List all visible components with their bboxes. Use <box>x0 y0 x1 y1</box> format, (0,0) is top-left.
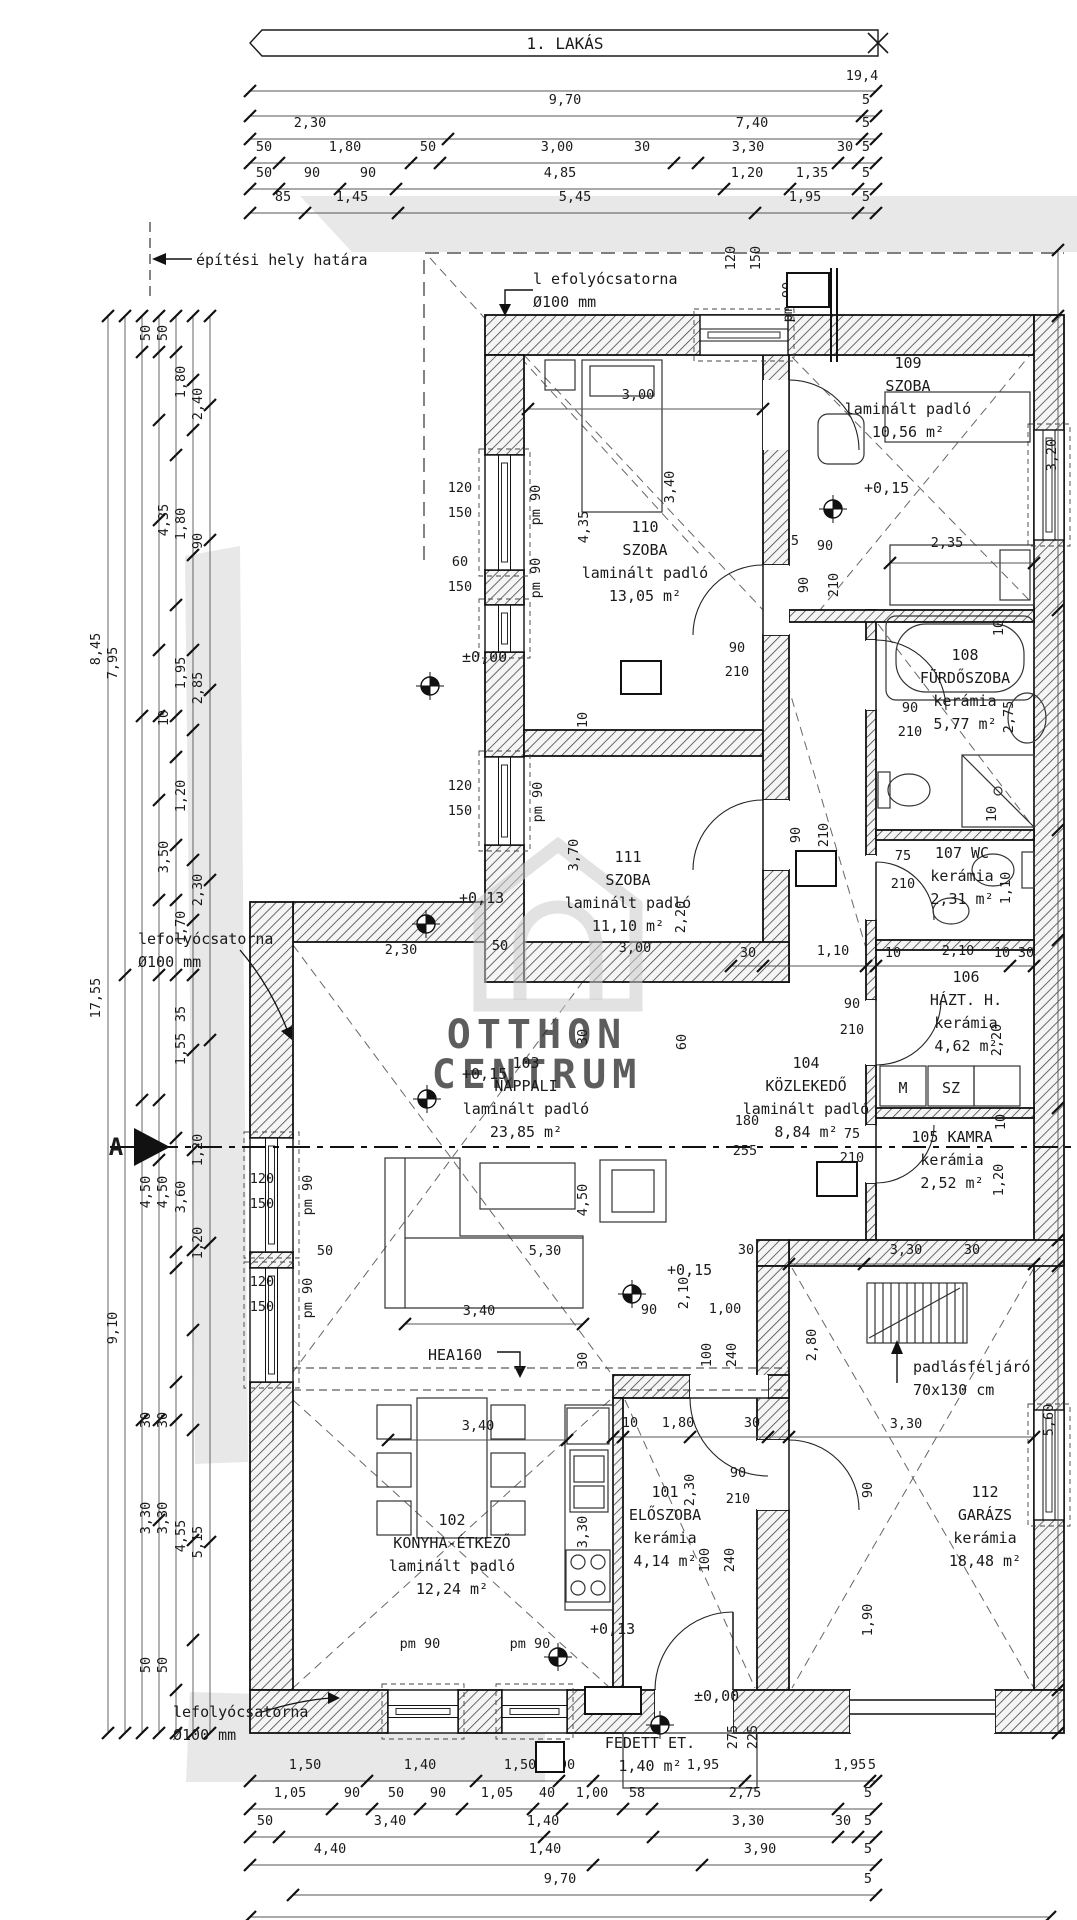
dimension-label: 2,30 <box>294 115 327 131</box>
dimension-label: 1,20 <box>190 1134 206 1167</box>
room-label: kerámia <box>934 1014 997 1032</box>
dimension-label: 50 <box>420 139 436 155</box>
room-label: 107 WC <box>935 844 989 862</box>
dimension-label: 90 <box>788 827 804 843</box>
door-opening <box>866 855 876 920</box>
room-label: 103 <box>512 1054 539 1072</box>
furniture <box>491 1405 525 1439</box>
dimension-label: 10 <box>156 710 172 726</box>
room-label: 110 <box>631 518 658 536</box>
level-marker-icon <box>416 672 444 700</box>
wall <box>293 902 485 942</box>
dimension-label: 10 <box>622 1415 638 1431</box>
dimension-label: 225 <box>745 1725 761 1749</box>
dimension-label: 10 <box>984 806 1000 822</box>
sofa <box>385 1158 583 1308</box>
room-label: 4,62 m² <box>934 1037 997 1055</box>
dimension-label: 30 <box>835 1813 851 1829</box>
dimension-label: 3,30 <box>575 1516 591 1549</box>
dimension-label: 3,30 <box>138 1502 154 1535</box>
dimension-label: 90 <box>860 1482 876 1498</box>
wall <box>250 1252 293 1268</box>
dimension-label: 1,80 <box>329 139 362 155</box>
dimension-label: 50 <box>138 325 154 341</box>
dimension-label: 30 <box>634 139 650 155</box>
furniture <box>377 1501 411 1535</box>
dimension-label: 1,40 <box>529 1841 562 1857</box>
door-swing-arc <box>789 1440 859 1510</box>
dimension-label: 17,55 <box>88 978 104 1019</box>
door-swing-arc <box>876 1000 941 1065</box>
dimension-label: 1,00 <box>576 1785 609 1801</box>
dimension-label: 4,35 <box>576 511 592 544</box>
appliance-label: SZ <box>942 1079 960 1097</box>
door-opening <box>763 380 789 450</box>
dimension-label: 5 <box>864 1785 872 1801</box>
wall <box>768 1375 789 1398</box>
dimension-label: 10 <box>994 945 1010 961</box>
dimension-label: pm 90 <box>528 485 544 526</box>
wall <box>789 1240 1064 1266</box>
level-value: +0,15 <box>864 479 909 497</box>
dimension-label: 8,45 <box>88 633 104 666</box>
dimension-label: 4,50 <box>575 1184 591 1217</box>
dimension-label: 3,00 <box>541 139 574 155</box>
limit-arrowhead <box>152 253 166 265</box>
dimension-label: 1,10 <box>817 943 850 959</box>
dimension-label: 10 <box>885 945 901 961</box>
dimension-label: 75 <box>895 848 911 864</box>
dimension-label: pm 90 <box>300 1278 316 1319</box>
level-marker-icon <box>819 495 847 523</box>
dimension-label: 2,75 <box>1001 701 1017 734</box>
dimension-label: 30 <box>575 1352 591 1368</box>
door-opening <box>850 1690 995 1733</box>
room-label: 109 <box>894 354 921 372</box>
furniture <box>574 1456 604 1482</box>
dimension-label: 210 <box>840 1022 864 1038</box>
dimension-label: 2,80 <box>804 1329 820 1362</box>
level-value: +0,13 <box>459 889 504 907</box>
door-opening <box>866 640 876 710</box>
dimension-label: 19,4 <box>846 68 879 84</box>
doors-layer <box>655 380 995 1733</box>
dimension-label: 2,85 <box>190 672 206 705</box>
dimension-label: 5,30 <box>529 1243 562 1259</box>
dimension-label: 50 <box>155 325 171 341</box>
room-label: 18,48 m² <box>949 1552 1021 1570</box>
dimension-label: 50 <box>256 139 272 155</box>
dimension-label: 5 <box>862 139 870 155</box>
stove-burner <box>591 1581 605 1595</box>
room-label: FÜRDŐSZOBA <box>920 667 1010 687</box>
dimension-label: 1,20 <box>991 1164 1007 1197</box>
dimension-label: 2,35 <box>931 535 964 551</box>
room-label: 5,77 m² <box>933 715 996 733</box>
room-label: kerámia <box>920 1151 983 1169</box>
furniture <box>491 1501 525 1535</box>
furniture <box>600 1160 666 1222</box>
dimension-label: 210 <box>826 573 842 597</box>
dimension-label: 150 <box>250 1196 274 1212</box>
door-opening <box>690 1375 768 1398</box>
stove-burner <box>571 1555 585 1569</box>
dimension-label: 7,40 <box>736 115 769 131</box>
dimension-label: 4,50 <box>138 1176 154 1209</box>
dim-tick <box>1044 1911 1056 1920</box>
dimension-label: 5 <box>862 115 870 131</box>
dimension-label: 100 <box>699 1343 715 1367</box>
dimension-label: 275 <box>725 1725 741 1749</box>
dimension-label: 30 <box>738 1242 754 1258</box>
dimension-label: 50 <box>155 1657 171 1673</box>
banner-label: 1. LAKÁS <box>526 34 603 53</box>
furniture <box>818 414 864 464</box>
dimension-label: 30 <box>138 1412 154 1428</box>
dimension-label: 3,60 <box>173 1181 189 1214</box>
note-label: építési hely határa <box>196 251 368 269</box>
room-label: 2,31 m² <box>930 890 993 908</box>
room-label: laminált padló <box>565 894 691 912</box>
window <box>479 751 530 851</box>
dimension-label: 1,95 <box>687 1757 720 1773</box>
dimension-label: 5 <box>862 92 870 108</box>
dimension-label: 3,40 <box>662 471 678 504</box>
dimension-label: 120 <box>723 246 739 270</box>
dimension-label: 5 <box>868 1757 876 1773</box>
dimension-label: 50 <box>492 938 508 954</box>
window <box>479 449 530 576</box>
dimension-label: 1,00 <box>709 1301 742 1317</box>
dimension-label: 3,30 <box>732 1813 765 1829</box>
dimension-label: 1,05 <box>481 1785 514 1801</box>
dimension-label: 1,40 <box>527 1813 560 1829</box>
dimension-label: 4,35 <box>156 504 172 537</box>
dimension-label: 50 <box>388 1785 404 1801</box>
ref-box-F04 <box>621 661 661 694</box>
dimension-label: 5,60 <box>1041 1404 1057 1437</box>
furniture <box>890 545 1034 605</box>
dimension-label: 40 <box>539 1785 555 1801</box>
window <box>244 1132 299 1258</box>
dimension-label: 9,70 <box>544 1871 577 1887</box>
dimension-label: 1,95 <box>834 1757 867 1773</box>
dimension-label: 150 <box>448 579 472 595</box>
dimension-label: 30 <box>744 1415 760 1431</box>
wall <box>876 830 1034 840</box>
dimension-label: 1,05 <box>274 1785 307 1801</box>
room-label: FEDETT ET. <box>605 1734 695 1752</box>
dimension-label: 1,55 <box>173 1033 189 1066</box>
dimension-label: 3,50 <box>156 841 172 874</box>
wall <box>485 355 524 455</box>
room-label: 108 <box>951 646 978 664</box>
dimension-label: 50 <box>138 1657 154 1673</box>
dimension-label: 1,40 <box>404 1757 437 1773</box>
window <box>382 1684 464 1739</box>
room-label: HÁZT. H. <box>930 990 1002 1009</box>
door-swing-arc <box>693 800 763 870</box>
door-opening <box>763 800 789 870</box>
note-label: padlásfeljáró <box>913 1358 1030 1376</box>
dimension-label: 30 <box>740 945 756 961</box>
dimension-label: 90 <box>641 1302 657 1318</box>
room-label: 10,56 m² <box>872 423 944 441</box>
room-label: 111 <box>614 848 641 866</box>
note-label: l efolyócsatorna <box>533 270 678 288</box>
dimension-label: 240 <box>722 1548 738 1572</box>
room-label: GARÁZS <box>958 1505 1012 1524</box>
room-label: kerámia <box>930 867 993 885</box>
dimension-label: 9,70 <box>549 92 582 108</box>
dimension-label: 2,75 <box>729 1785 762 1801</box>
dimension-label: 3,30 <box>890 1242 923 1258</box>
dimension-label: 90 <box>360 165 376 181</box>
room-label: laminált padló <box>463 1100 589 1118</box>
dimension-label: 4,50 <box>155 1176 171 1209</box>
floor-plan-canvas: OTTHONCENTRUM 1. LAKÁS 19,49,7052,307,40… <box>0 0 1077 1920</box>
dimension-label: 30 <box>964 1242 980 1258</box>
dimension-label: 1,35 <box>796 165 829 181</box>
note-label: 70x130 cm <box>913 1381 994 1399</box>
dimension-label: 150 <box>448 803 472 819</box>
room-label: 112 <box>971 1483 998 1501</box>
room-label: laminált padló <box>845 400 971 418</box>
room-label: 11,10 m² <box>592 917 664 935</box>
dim-tick <box>244 1911 256 1920</box>
dimension-label: 30 <box>155 1412 171 1428</box>
furniture <box>1022 852 1034 888</box>
dimension-label: 150 <box>250 1299 274 1315</box>
room-label: kerámia <box>633 1529 696 1547</box>
furniture <box>570 1450 608 1512</box>
dimension-label: 120 <box>250 1171 274 1187</box>
furniture <box>480 1163 575 1209</box>
room-label: 12,24 m² <box>416 1580 488 1598</box>
dimension-label: 90 <box>430 1785 446 1801</box>
dimension-label: pm 90 <box>530 782 546 823</box>
dimension-label: 90 <box>817 538 833 554</box>
dimension-label: 5 <box>864 1871 872 1887</box>
dimension-label: 75 <box>844 1126 860 1142</box>
room-label: KONYHA-ÉTKEZŐ <box>393 1532 510 1552</box>
dimension-label: 1,20 <box>731 165 764 181</box>
dimension-label: 58 <box>629 1785 645 1801</box>
room-label: KÖZLEKEDŐ <box>765 1075 846 1095</box>
dimension-label: 90 <box>796 577 812 593</box>
wall <box>763 635 789 800</box>
dimension-label: 120 <box>448 778 472 794</box>
furniture <box>377 1405 411 1439</box>
dimension-label: 10 <box>575 712 591 728</box>
dimension-label: 30 <box>837 139 853 155</box>
furniture <box>612 1170 654 1212</box>
furniture <box>567 1408 609 1444</box>
ref-box-1 <box>536 1742 564 1772</box>
door-opening <box>866 1000 876 1065</box>
appliance-label: M <box>898 1079 907 1097</box>
dimension-label: 9,10 <box>105 1312 121 1345</box>
dimension-label: 3,20 <box>1044 439 1060 472</box>
dimension-label: pm 90 <box>300 1175 316 1216</box>
note-label: Ø100 mm <box>138 953 201 971</box>
level-value: +0,13 <box>590 1620 635 1638</box>
room-label: 1,40 m² <box>618 1757 681 1775</box>
dimension-label: 5 <box>864 1841 872 1857</box>
dimension-label: 1,20 <box>190 1227 206 1260</box>
wall <box>757 1240 789 1266</box>
dimension-label: 2,10 <box>942 943 975 959</box>
wall <box>866 710 876 855</box>
dimension-label: 3,00 <box>622 387 655 403</box>
dimension-label: 3,40 <box>374 1813 407 1829</box>
dimension-label: 1,80 <box>173 366 189 399</box>
dimension-label: 1,95 <box>789 189 822 205</box>
furniture <box>545 360 575 390</box>
room-label: 106 <box>952 968 979 986</box>
floor-plan-page: OTTHONCENTRUM 1. LAKÁS 19,49,7052,307,40… <box>0 0 1077 1920</box>
ref-box-F01 <box>796 851 836 886</box>
dimension-label: 30 <box>1018 945 1034 961</box>
furniture <box>888 774 930 806</box>
dimension-label: 4,40 <box>314 1841 347 1857</box>
wall <box>613 1375 690 1398</box>
door-opening <box>757 1440 789 1510</box>
dimension-label: 50 <box>257 1813 273 1829</box>
dimension-label: 60 <box>674 1034 690 1050</box>
dimension-label: 210 <box>816 823 832 847</box>
dimension-label: pm 90 <box>510 1636 551 1652</box>
dimension-label: 2,40 <box>190 388 206 421</box>
ref-box-H01 <box>787 273 829 307</box>
dimension-label: 3,40 <box>462 1418 495 1434</box>
note-label: HEA160 <box>428 1346 482 1364</box>
attic-arrowhead <box>891 1340 903 1354</box>
dimension-label: 1,45 <box>336 189 369 205</box>
room-label: 101 <box>651 1483 678 1501</box>
dimension-label: 1,80 <box>173 508 189 541</box>
dimension-label: 30 <box>575 1029 591 1045</box>
dimension-label: 5,15 <box>190 1526 206 1559</box>
dimension-label: 210 <box>898 724 922 740</box>
room-label: laminált padló <box>389 1557 515 1575</box>
section-label: A <box>109 1133 124 1161</box>
dimension-label: 85 <box>275 189 291 205</box>
room-label: kerámia <box>933 692 996 710</box>
wall <box>250 1382 293 1690</box>
dimension-label: 5 <box>862 189 870 205</box>
dimension-label: 100 <box>697 1548 713 1572</box>
dimension-label: 150 <box>448 505 472 521</box>
wall <box>485 570 524 605</box>
dimension-label: 5 <box>791 533 799 549</box>
dimension-label: 1,10 <box>998 872 1014 905</box>
dimension-label: 120 <box>448 480 472 496</box>
window <box>694 309 794 361</box>
dimension-label: 1,20 <box>173 780 189 813</box>
dimension-label: 5 <box>862 165 870 181</box>
door-opening <box>866 1125 876 1183</box>
dimension-label: 35 <box>173 1006 189 1022</box>
dimension-label: pm 90 <box>400 1636 441 1652</box>
level-value: ±0,00 <box>462 648 507 666</box>
dimension-label: 90 <box>902 700 918 716</box>
dimension-label: 4,55 <box>173 1520 189 1553</box>
dimension-label: 3,30 <box>732 139 765 155</box>
dimension-label: 3,90 <box>744 1841 777 1857</box>
title-banner: 1. LAKÁS <box>250 30 888 56</box>
dimension-label: 1,80 <box>662 1415 695 1431</box>
dimension-label: 1,50 <box>289 1757 322 1773</box>
window <box>496 1684 573 1739</box>
dimension-label: 90 <box>304 165 320 181</box>
dimension-label: 60 <box>452 554 468 570</box>
dimension-label: 1,95 <box>173 657 189 690</box>
wall <box>995 1690 1064 1733</box>
dimension-label: 90 <box>344 1785 360 1801</box>
dimension-label: 255 <box>733 1143 757 1159</box>
dimension-label: 3,30 <box>155 1502 171 1535</box>
note-label: lefolyócsatorna <box>173 1703 308 1721</box>
dimension-label: 4,85 <box>544 165 577 181</box>
dimension-label: 150 <box>748 246 764 270</box>
dimension-label: 3,30 <box>890 1416 923 1432</box>
room-label: 104 <box>792 1054 819 1072</box>
dimension-label: 210 <box>725 664 749 680</box>
stove-burner <box>591 1555 605 1569</box>
room-label: SZOBA <box>622 541 667 559</box>
room-label: laminált padló <box>743 1100 869 1118</box>
ref-box-F02 <box>817 1162 857 1196</box>
dimension-label: 1,90 <box>860 1604 876 1637</box>
room-label: 13,05 m² <box>609 587 681 605</box>
dimension-label: 10 <box>993 1114 1009 1130</box>
wall <box>485 652 524 757</box>
dimension-label: 3,40 <box>463 1303 496 1319</box>
dimension-label: 120 <box>250 1274 274 1290</box>
dimension-label: 210 <box>726 1491 750 1507</box>
dimension-label: 90 <box>730 1465 746 1481</box>
note-label: Ø100 mm <box>533 293 596 311</box>
wall <box>757 1510 789 1690</box>
furniture <box>974 1066 1020 1106</box>
level-value: +0,15 <box>462 1065 507 1083</box>
room-label: ELŐSZOBA <box>629 1504 701 1524</box>
wall <box>524 730 763 756</box>
dimension-label: 10 <box>991 620 1007 636</box>
door-opening <box>763 565 789 635</box>
room-label: SZOBA <box>885 377 930 395</box>
room-label: 8,84 m² <box>774 1123 837 1141</box>
level-value: +0,15 <box>667 1261 712 1279</box>
dimension-label: 2,30 <box>682 1474 698 1507</box>
dimension-label: 50 <box>256 165 272 181</box>
dimension-label: 5 <box>864 1813 872 1829</box>
door-swing-arc <box>655 1612 733 1690</box>
dimension-label: 240 <box>724 1343 740 1367</box>
ref-box-K101 <box>585 1687 641 1714</box>
dimension-label: 5,45 <box>559 189 592 205</box>
furniture <box>574 1486 604 1508</box>
dimension-label: 1,50 <box>504 1757 537 1773</box>
dimension-label: 3,00 <box>619 940 652 956</box>
room-label: 105 KAMRA <box>911 1128 992 1146</box>
section-arrow <box>134 1128 170 1166</box>
dimension-label: 90 <box>729 640 745 656</box>
stove-burner <box>571 1581 585 1595</box>
dimension-label: 2,30 <box>190 874 206 907</box>
dimension-label: 2,10 <box>676 1277 692 1310</box>
